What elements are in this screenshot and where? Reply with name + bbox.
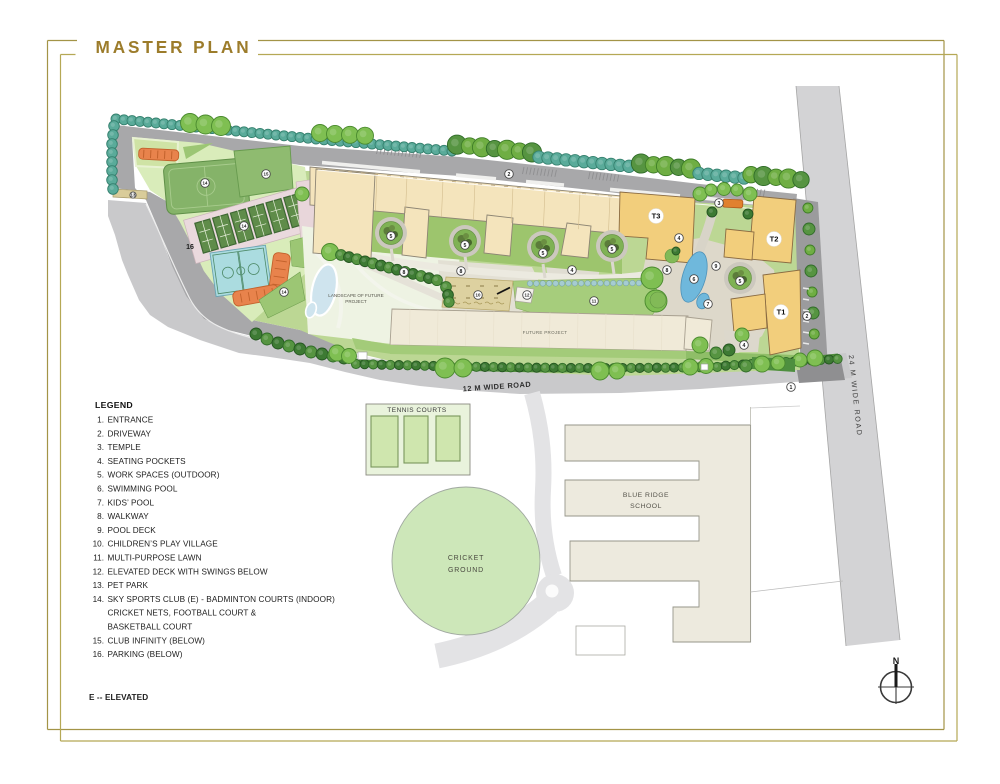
svg-text:BLUE RIDGE: BLUE RIDGE [623,492,669,499]
svg-text:16: 16 [186,244,194,251]
svg-text:3.: 3. [97,443,104,452]
svg-text:CHILDREN’S PLAY VILLAGE: CHILDREN’S PLAY VILLAGE [108,540,219,549]
svg-text:LEGEND: LEGEND [95,400,133,410]
svg-text:SWIMMING POOL: SWIMMING POOL [108,485,178,494]
svg-text:10.: 10. [93,540,104,549]
svg-text:16.: 16. [93,650,104,659]
svg-text:11.: 11. [93,554,104,563]
svg-text:1: 1 [790,385,793,391]
svg-text:ENTRANCE: ENTRANCE [108,416,154,425]
svg-text:WALKWAY: WALKWAY [108,512,150,521]
svg-text:5: 5 [390,234,393,240]
svg-text:5.: 5. [97,471,104,480]
svg-text:SKY SPORTS CLUB (E) - BADMINTO: SKY SPORTS CLUB (E) - BADMINTON COURTS (… [108,595,336,604]
svg-text:4: 4 [571,268,574,274]
svg-text:CRICKET NETS, FOOTBALL COURT &: CRICKET NETS, FOOTBALL COURT & [108,609,257,618]
svg-text:3: 3 [718,201,721,207]
svg-text:T1: T1 [777,308,786,317]
svg-text:14: 14 [203,181,208,186]
svg-text:12.: 12. [93,567,104,576]
svg-text:15.: 15. [93,636,104,645]
svg-text:14: 14 [242,224,247,229]
svg-text:6: 6 [693,277,696,283]
svg-text:8: 8 [403,270,406,276]
svg-text:FUTURE PROJECT: FUTURE PROJECT [523,330,568,335]
svg-text:MULTI-PURPOSE LAWN: MULTI-PURPOSE LAWN [108,554,202,563]
svg-text:9: 9 [715,264,718,270]
svg-text:ELEVATED DECK WITH SWINGS BELO: ELEVATED DECK WITH SWINGS BELOW [108,567,268,576]
svg-text:5: 5 [464,243,467,249]
svg-text:10: 10 [476,293,481,298]
svg-text:BASKETBALL COURT: BASKETBALL COURT [108,623,193,632]
svg-text:MASTER PLAN: MASTER PLAN [96,37,252,57]
svg-text:CLUB INFINITY (BELOW): CLUB INFINITY (BELOW) [108,636,206,645]
svg-text:PET PARK: PET PARK [108,581,149,590]
svg-text:11: 11 [592,299,597,304]
svg-text:T3: T3 [652,212,661,221]
svg-text:14.: 14. [93,595,104,604]
svg-text:E -- ELEVATED: E -- ELEVATED [89,693,148,702]
svg-text:13.: 13. [93,581,104,590]
svg-text:5: 5 [611,247,614,253]
svg-text:KIDS’ POOL: KIDS’ POOL [108,498,155,507]
svg-text:5: 5 [542,251,545,257]
svg-text:8: 8 [666,268,669,274]
svg-text:1.: 1. [97,416,104,425]
svg-text:2: 2 [508,172,511,178]
svg-text:N: N [893,656,900,666]
svg-text:PROJECT: PROJECT [345,299,367,304]
svg-text:LANDSCAPE OF FUTURE: LANDSCAPE OF FUTURE [328,293,383,298]
svg-text:7.: 7. [97,498,104,507]
svg-text:GROUND: GROUND [448,567,484,574]
svg-text:6.: 6. [97,485,104,494]
svg-text:12: 12 [525,293,530,298]
svg-text:5: 5 [739,279,742,285]
svg-text:7: 7 [707,302,710,308]
svg-text:2.: 2. [97,429,104,438]
svg-text:4: 4 [743,343,746,349]
svg-text:DRIVEWAY: DRIVEWAY [108,429,152,438]
svg-text:POOL DECK: POOL DECK [108,526,157,535]
svg-text:TENNIS COURTS: TENNIS COURTS [387,407,447,414]
svg-text:15: 15 [264,172,269,177]
svg-text:14: 14 [282,290,287,295]
svg-text:SCHOOL: SCHOOL [630,503,662,510]
svg-text:9.: 9. [97,526,104,535]
svg-text:T2: T2 [770,235,779,244]
svg-text:13: 13 [131,193,136,198]
svg-text:WORK SPACES (OUTDOOR): WORK SPACES (OUTDOOR) [108,471,220,480]
svg-text:CRICKET: CRICKET [448,555,484,562]
svg-text:8.: 8. [97,512,104,521]
svg-text:4: 4 [678,236,681,242]
svg-text:SEATING POCKETS: SEATING POCKETS [108,457,187,466]
svg-text:2: 2 [806,314,809,320]
svg-text:4.: 4. [97,457,104,466]
svg-text:TEMPLE: TEMPLE [108,443,142,452]
svg-text:8: 8 [460,269,463,275]
svg-text:PARKING (BELOW): PARKING (BELOW) [108,650,183,659]
